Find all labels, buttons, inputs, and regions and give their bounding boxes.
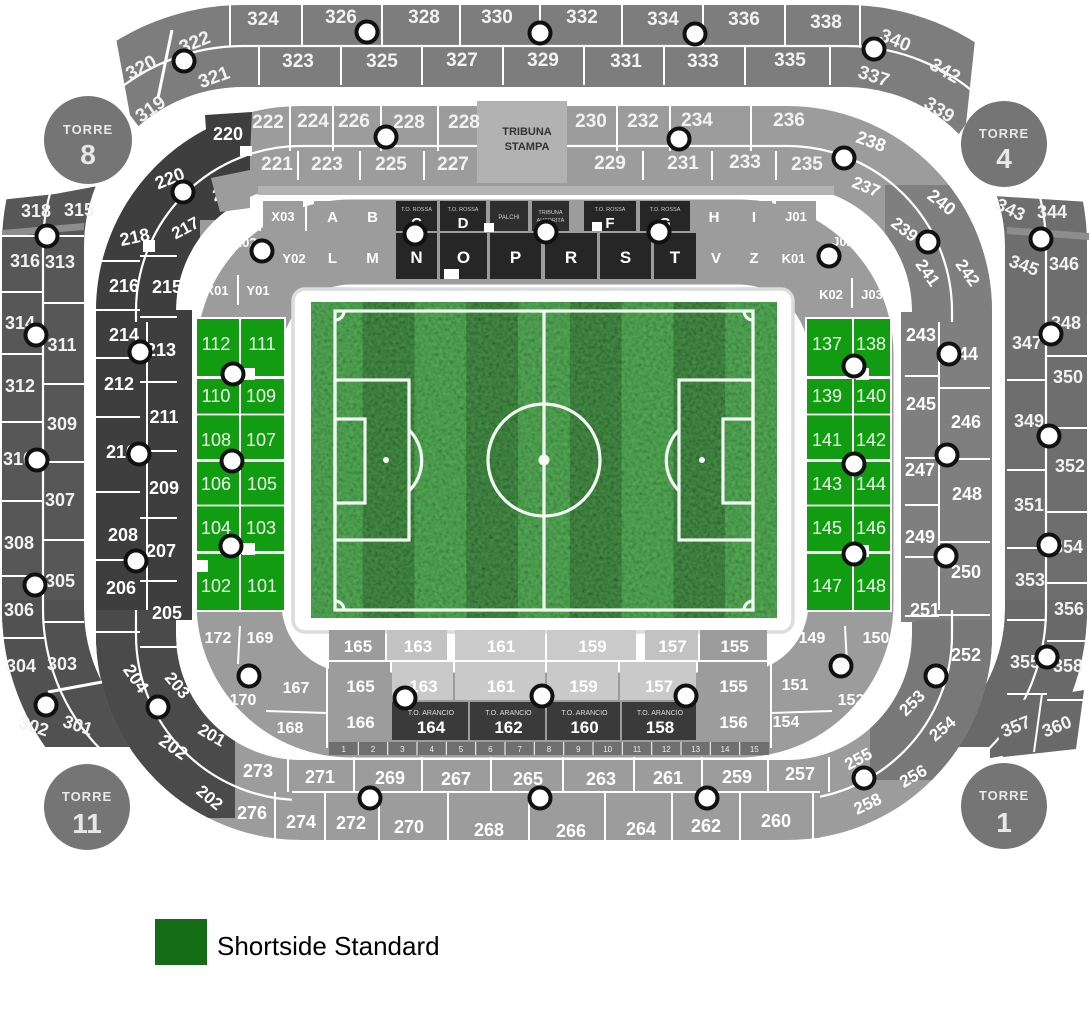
svg-text:TRIBUNA: TRIBUNA [502, 126, 552, 138]
svg-text:138: 138 [856, 334, 886, 354]
svg-text:143: 143 [812, 474, 842, 494]
svg-text:4: 4 [996, 143, 1012, 174]
svg-text:167: 167 [283, 680, 310, 697]
svg-text:F: F [605, 215, 614, 232]
svg-text:353: 353 [1015, 570, 1045, 590]
svg-text:K01: K01 [782, 251, 806, 266]
svg-text:205: 205 [152, 603, 182, 623]
svg-text:350: 350 [1053, 367, 1083, 387]
svg-text:346: 346 [1049, 254, 1079, 274]
svg-text:106: 106 [201, 474, 231, 494]
svg-text:TRIBUNA: TRIBUNA [538, 210, 562, 216]
svg-text:260: 260 [761, 811, 791, 831]
svg-text:112: 112 [202, 334, 231, 354]
svg-text:261: 261 [653, 768, 683, 788]
svg-text:269: 269 [375, 768, 405, 788]
svg-text:142: 142 [856, 430, 886, 450]
svg-text:145: 145 [812, 518, 842, 538]
svg-text:336: 336 [728, 9, 760, 30]
svg-text:236: 236 [773, 110, 805, 131]
svg-text:262: 262 [691, 816, 721, 836]
svg-text:159: 159 [569, 677, 597, 696]
svg-text:14: 14 [721, 745, 730, 754]
svg-text:311: 311 [47, 335, 76, 355]
svg-text:344: 344 [1037, 202, 1067, 222]
svg-text:338: 338 [810, 12, 842, 33]
svg-text:1: 1 [341, 745, 346, 754]
svg-text:O: O [457, 248, 470, 267]
svg-text:252: 252 [951, 645, 981, 665]
svg-text:V: V [711, 250, 721, 267]
svg-text:250: 250 [951, 562, 981, 582]
svg-text:216: 216 [109, 276, 139, 296]
svg-text:1: 1 [996, 807, 1012, 838]
svg-text:351: 351 [1014, 495, 1044, 515]
svg-text:165: 165 [344, 637, 372, 656]
svg-text:P: P [510, 248, 521, 267]
svg-text:T: T [670, 248, 681, 267]
svg-text:B: B [367, 209, 378, 226]
svg-text:11: 11 [633, 745, 642, 754]
svg-text:Shortside Standard: Shortside Standard [217, 931, 440, 961]
svg-text:356: 356 [1054, 599, 1084, 619]
svg-text:166: 166 [346, 713, 374, 732]
svg-text:M: M [366, 250, 379, 267]
svg-text:S: S [620, 248, 631, 267]
svg-text:X01: X01 [205, 283, 228, 298]
svg-text:8: 8 [547, 745, 552, 754]
svg-text:330: 330 [481, 7, 513, 28]
svg-text:11: 11 [72, 808, 102, 839]
svg-text:150: 150 [863, 630, 890, 647]
svg-text:102: 102 [201, 576, 231, 596]
svg-text:N: N [410, 248, 422, 267]
svg-text:331: 331 [610, 51, 642, 72]
svg-text:161: 161 [487, 677, 515, 696]
svg-text:233: 233 [729, 152, 761, 173]
svg-text:246: 246 [951, 412, 981, 432]
svg-text:TORRE: TORRE [979, 788, 1029, 803]
svg-text:232: 232 [627, 111, 659, 132]
svg-text:212: 212 [104, 374, 134, 394]
svg-text:306: 306 [4, 600, 34, 620]
svg-text:247: 247 [905, 460, 935, 480]
svg-text:276: 276 [237, 803, 267, 823]
svg-text:274: 274 [286, 812, 316, 832]
svg-text:271: 271 [305, 767, 335, 787]
svg-text:224: 224 [297, 111, 329, 132]
svg-text:163: 163 [404, 637, 432, 656]
svg-text:15: 15 [750, 745, 759, 754]
svg-text:164: 164 [417, 718, 446, 737]
svg-text:TORRE: TORRE [63, 122, 113, 137]
svg-text:249: 249 [905, 527, 935, 547]
svg-text:149: 149 [799, 630, 826, 647]
svg-text:231: 231 [667, 153, 699, 174]
svg-text:323: 323 [282, 51, 314, 72]
svg-text:T.O. ROSSA: T.O. ROSSA [650, 207, 681, 213]
svg-text:TORRE: TORRE [62, 789, 112, 804]
svg-text:J01: J01 [785, 209, 807, 224]
svg-text:147: 147 [812, 576, 842, 596]
svg-text:146: 146 [856, 518, 886, 538]
svg-text:155: 155 [720, 637, 748, 656]
svg-text:157: 157 [658, 637, 686, 656]
svg-text:273: 273 [243, 761, 273, 781]
svg-text:234: 234 [681, 110, 713, 131]
svg-text:110: 110 [202, 386, 231, 406]
svg-text:148: 148 [856, 576, 886, 596]
svg-text:PALCHI: PALCHI [498, 215, 520, 221]
svg-text:152: 152 [838, 692, 865, 709]
svg-text:155: 155 [719, 677, 747, 696]
svg-text:225: 225 [375, 154, 407, 175]
svg-text:5: 5 [459, 745, 464, 754]
svg-text:111: 111 [248, 334, 275, 354]
svg-text:Z: Z [749, 250, 758, 267]
svg-text:332: 332 [566, 7, 598, 28]
svg-text:329: 329 [527, 50, 559, 71]
svg-text:12: 12 [662, 745, 671, 754]
svg-text:154: 154 [773, 714, 800, 731]
svg-text:245: 245 [906, 394, 936, 414]
svg-text:161: 161 [487, 637, 515, 656]
svg-text:206: 206 [106, 578, 136, 598]
svg-text:108: 108 [201, 430, 231, 450]
svg-text:137: 137 [812, 334, 842, 354]
svg-text:324: 324 [247, 9, 279, 30]
svg-text:334: 334 [647, 9, 679, 30]
svg-text:13: 13 [691, 745, 700, 754]
svg-text:9: 9 [576, 745, 581, 754]
svg-text:STAMPA: STAMPA [505, 141, 550, 153]
svg-text:211: 211 [149, 407, 178, 427]
svg-text:144: 144 [856, 474, 886, 494]
svg-text:326: 326 [325, 7, 357, 28]
svg-text:209: 209 [149, 478, 179, 498]
svg-text:159: 159 [578, 637, 606, 656]
svg-text:309: 309 [47, 414, 77, 434]
svg-text:223: 223 [311, 154, 343, 175]
svg-text:Y01: Y01 [246, 283, 269, 298]
svg-text:X03: X03 [271, 209, 294, 224]
svg-text:207: 207 [146, 541, 176, 561]
svg-text:T.O. ARANCIO: T.O. ARANCIO [408, 710, 455, 717]
svg-text:228: 228 [393, 112, 425, 133]
svg-text:156: 156 [719, 713, 747, 732]
svg-text:141: 141 [812, 430, 842, 450]
svg-text:Y02: Y02 [282, 251, 305, 266]
svg-text:T.O. ROSSA: T.O. ROSSA [448, 207, 479, 213]
svg-text:T.O. ARANCIO: T.O. ARANCIO [561, 710, 608, 717]
svg-text:T.O. ARANCIO: T.O. ARANCIO [637, 710, 684, 717]
svg-text:10: 10 [603, 745, 612, 754]
svg-text:T.O. ARANCIO: T.O. ARANCIO [485, 710, 532, 717]
svg-text:267: 267 [441, 769, 471, 789]
svg-text:4: 4 [429, 745, 434, 754]
svg-text:325: 325 [366, 51, 398, 72]
svg-text:228: 228 [448, 112, 480, 133]
svg-text:T.O. ROSSA: T.O. ROSSA [401, 207, 432, 213]
svg-text:215: 215 [152, 277, 182, 297]
svg-text:D: D [458, 215, 469, 232]
svg-text:222: 222 [252, 112, 284, 133]
svg-text:352: 352 [1055, 456, 1085, 476]
svg-text:227: 227 [437, 154, 469, 175]
svg-text:220: 220 [213, 124, 243, 144]
svg-text:307: 307 [45, 490, 75, 510]
svg-text:315: 315 [64, 200, 94, 220]
svg-text:335: 335 [774, 50, 806, 71]
svg-text:T.O. ROSSA: T.O. ROSSA [595, 207, 626, 213]
svg-text:328: 328 [408, 7, 440, 28]
svg-text:158: 158 [646, 718, 674, 737]
svg-text:172: 172 [205, 630, 232, 647]
svg-text:305: 305 [45, 571, 75, 591]
svg-text:2: 2 [371, 745, 376, 754]
svg-text:318: 318 [21, 201, 51, 221]
svg-text:169: 169 [247, 630, 274, 647]
svg-text:308: 308 [4, 533, 34, 553]
svg-text:139: 139 [812, 386, 842, 406]
svg-text:R: R [565, 248, 577, 267]
svg-text:230: 230 [575, 111, 607, 132]
svg-text:6: 6 [488, 745, 493, 754]
svg-text:7: 7 [517, 745, 522, 754]
svg-text:221: 221 [261, 154, 293, 175]
svg-text:L: L [328, 250, 337, 267]
svg-text:312: 312 [5, 376, 35, 396]
svg-text:248: 248 [952, 484, 982, 504]
svg-text:304: 304 [6, 656, 36, 676]
svg-text:109: 109 [246, 386, 276, 406]
svg-text:TORRE: TORRE [979, 126, 1029, 141]
svg-text:168: 168 [277, 720, 304, 737]
svg-text:313: 313 [45, 252, 75, 272]
svg-text:A: A [327, 209, 338, 226]
svg-text:162: 162 [494, 718, 522, 737]
svg-text:229: 229 [594, 153, 626, 174]
svg-text:103: 103 [246, 518, 276, 538]
svg-text:3: 3 [400, 745, 405, 754]
svg-text:107: 107 [246, 430, 276, 450]
svg-text:105: 105 [247, 474, 277, 494]
svg-text:157: 157 [645, 677, 673, 696]
svg-text:268: 268 [474, 820, 504, 840]
svg-text:235: 235 [791, 154, 823, 175]
svg-text:H: H [709, 209, 720, 226]
svg-text:303: 303 [47, 654, 77, 674]
svg-text:270: 270 [394, 817, 424, 837]
svg-text:243: 243 [906, 325, 936, 345]
svg-text:266: 266 [556, 821, 586, 841]
svg-text:160: 160 [570, 718, 598, 737]
svg-text:327: 327 [446, 50, 478, 71]
svg-text:226: 226 [338, 111, 370, 132]
svg-text:K02: K02 [819, 287, 843, 302]
svg-text:I: I [752, 209, 756, 226]
svg-text:259: 259 [722, 767, 752, 787]
svg-text:263: 263 [586, 769, 616, 789]
svg-text:J03: J03 [861, 287, 883, 302]
svg-text:347: 347 [1012, 333, 1042, 353]
svg-text:170: 170 [230, 692, 257, 709]
svg-text:8: 8 [80, 139, 96, 170]
svg-text:272: 272 [336, 813, 366, 833]
svg-text:140: 140 [856, 386, 886, 406]
svg-text:208: 208 [108, 525, 138, 545]
svg-text:165: 165 [346, 677, 374, 696]
svg-text:257: 257 [785, 764, 815, 784]
svg-text:264: 264 [626, 819, 656, 839]
svg-text:333: 333 [687, 51, 719, 72]
svg-text:151: 151 [782, 677, 809, 694]
svg-text:101: 101 [247, 576, 277, 596]
svg-text:316: 316 [10, 251, 40, 271]
